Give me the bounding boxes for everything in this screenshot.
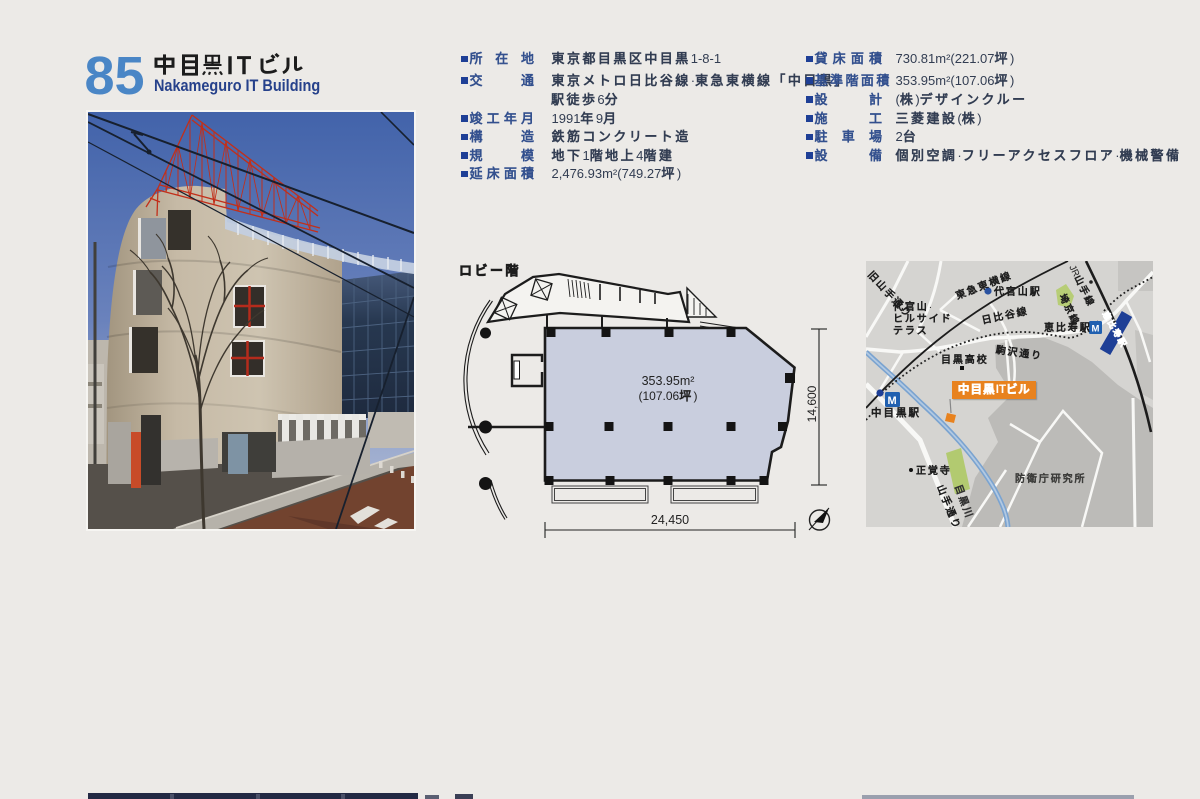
svg-text:M: M: [1092, 324, 1100, 335]
